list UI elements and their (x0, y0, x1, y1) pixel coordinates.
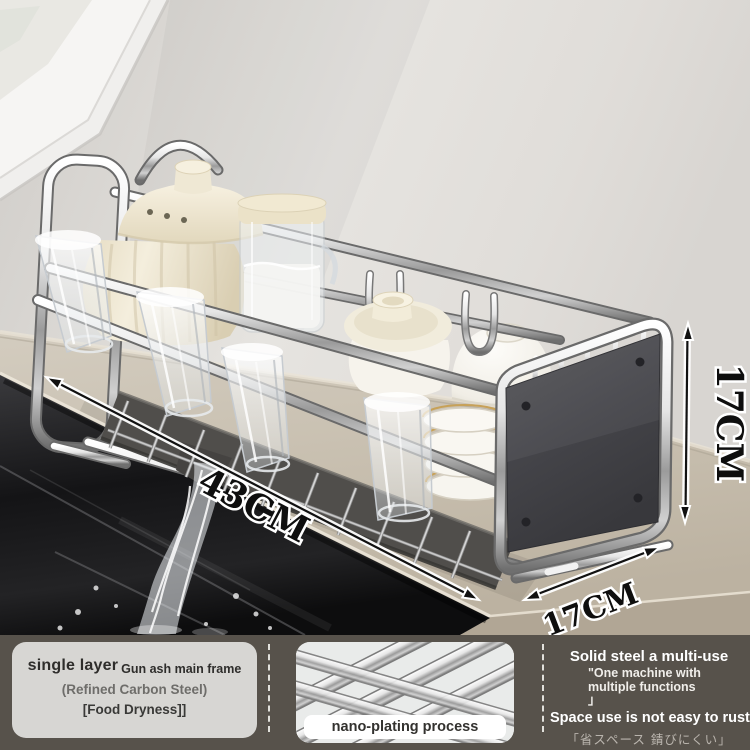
spec-subtitle: Gun ash main frame (121, 662, 241, 676)
info-quote: "One machine with multiple functions 」 (588, 667, 748, 708)
info-quote-line: 」 (588, 694, 748, 708)
height-label: 17CM (708, 364, 750, 483)
spec-material: (Refined Carbon Steel) (12, 682, 257, 697)
info-japanese-note: 「省スペース 錆びにくい」 (550, 729, 748, 748)
dashed-divider (268, 644, 270, 732)
spec-title-row: single layerGun ash main frame (12, 657, 257, 675)
info-quote-line: "One machine with (588, 667, 748, 681)
info-quote-line: multiple functions (588, 681, 748, 695)
feature-banner: single layerGun ash main frame (Refined … (0, 635, 750, 750)
spec-card: single layerGun ash main frame (Refined … (12, 642, 257, 738)
sugar-jar (344, 292, 452, 398)
spec-feature: [Food Dryness]] (12, 702, 257, 717)
info-text-block: Solid steel a multi-use "One machine wit… (550, 643, 748, 748)
spec-title: single layer (28, 657, 118, 674)
nano-plating-card: nano-plating process (296, 642, 514, 743)
info-subheadline: Space use is not easy to rust (550, 710, 748, 726)
glass-pitcher (238, 194, 335, 332)
product-image: 43CM 17CM 17CM single layerGun ash main … (0, 0, 750, 750)
info-headline: Solid steel a multi-use (550, 648, 748, 665)
dashed-divider (542, 644, 544, 732)
kitchen-scene: 43CM 17CM 17CM (0, 0, 750, 635)
nano-caption: nano-plating process (304, 715, 506, 739)
